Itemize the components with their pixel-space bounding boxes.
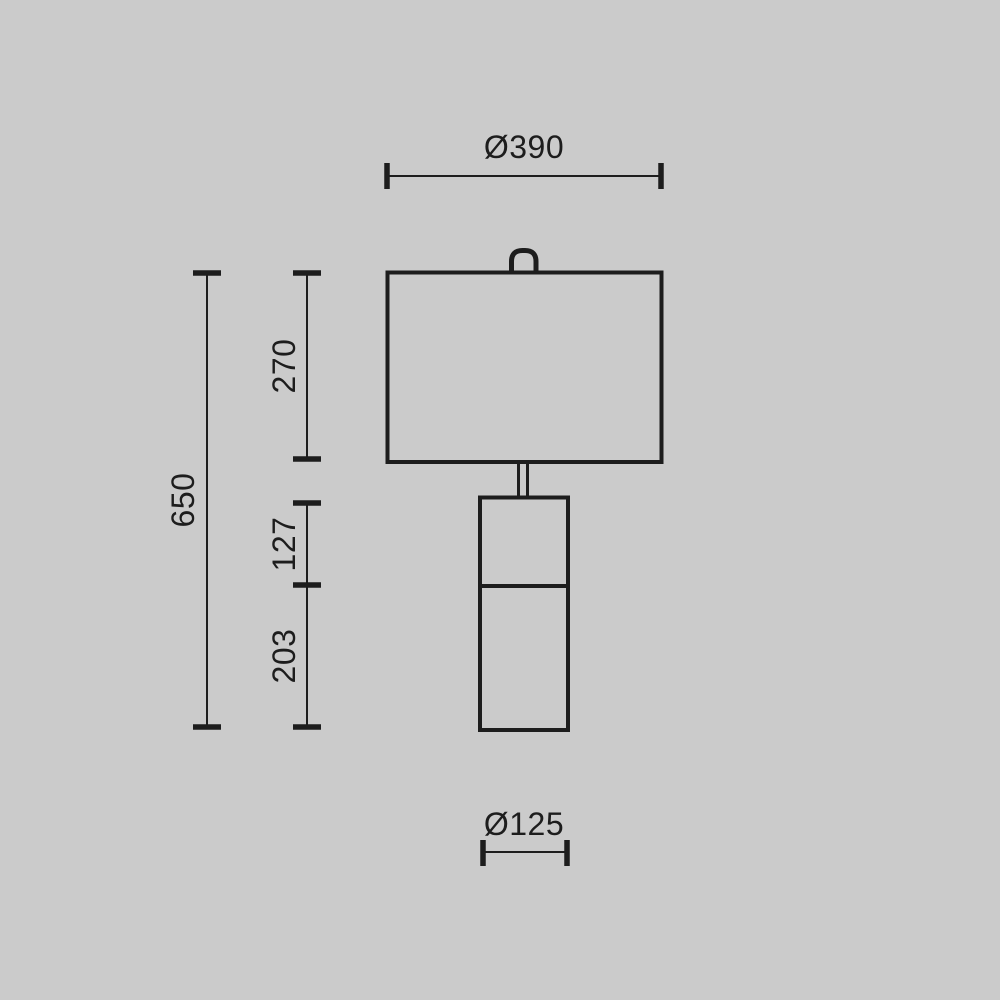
dimension-label-total-height: 650 <box>165 473 201 528</box>
dimension-body-heights: 127 203 <box>266 503 321 727</box>
drawing-canvas: Ø390 650 270 127 203 <box>0 0 1000 1000</box>
lamp-body <box>480 498 568 731</box>
dimension-shade-height: 270 <box>266 273 321 459</box>
dimension-label-lower-body-height: 203 <box>266 629 302 684</box>
lamp-neck <box>519 462 528 498</box>
lamp-dimension-drawing: Ø390 650 270 127 203 <box>0 0 1000 1000</box>
dimension-label-base-diameter: Ø125 <box>484 806 564 842</box>
dimension-total-height: 650 <box>165 273 221 727</box>
lamp-finial <box>512 251 537 274</box>
lamp-shade <box>388 273 662 463</box>
dimension-label-upper-body-height: 127 <box>266 517 302 572</box>
dimension-label-shade-height: 270 <box>266 339 302 394</box>
dimension-shade-diameter: Ø390 <box>387 129 661 189</box>
dimension-base-diameter: Ø125 <box>483 806 567 866</box>
dimension-label-shade-diameter: Ø390 <box>484 129 564 165</box>
lamp-outline <box>388 251 662 731</box>
